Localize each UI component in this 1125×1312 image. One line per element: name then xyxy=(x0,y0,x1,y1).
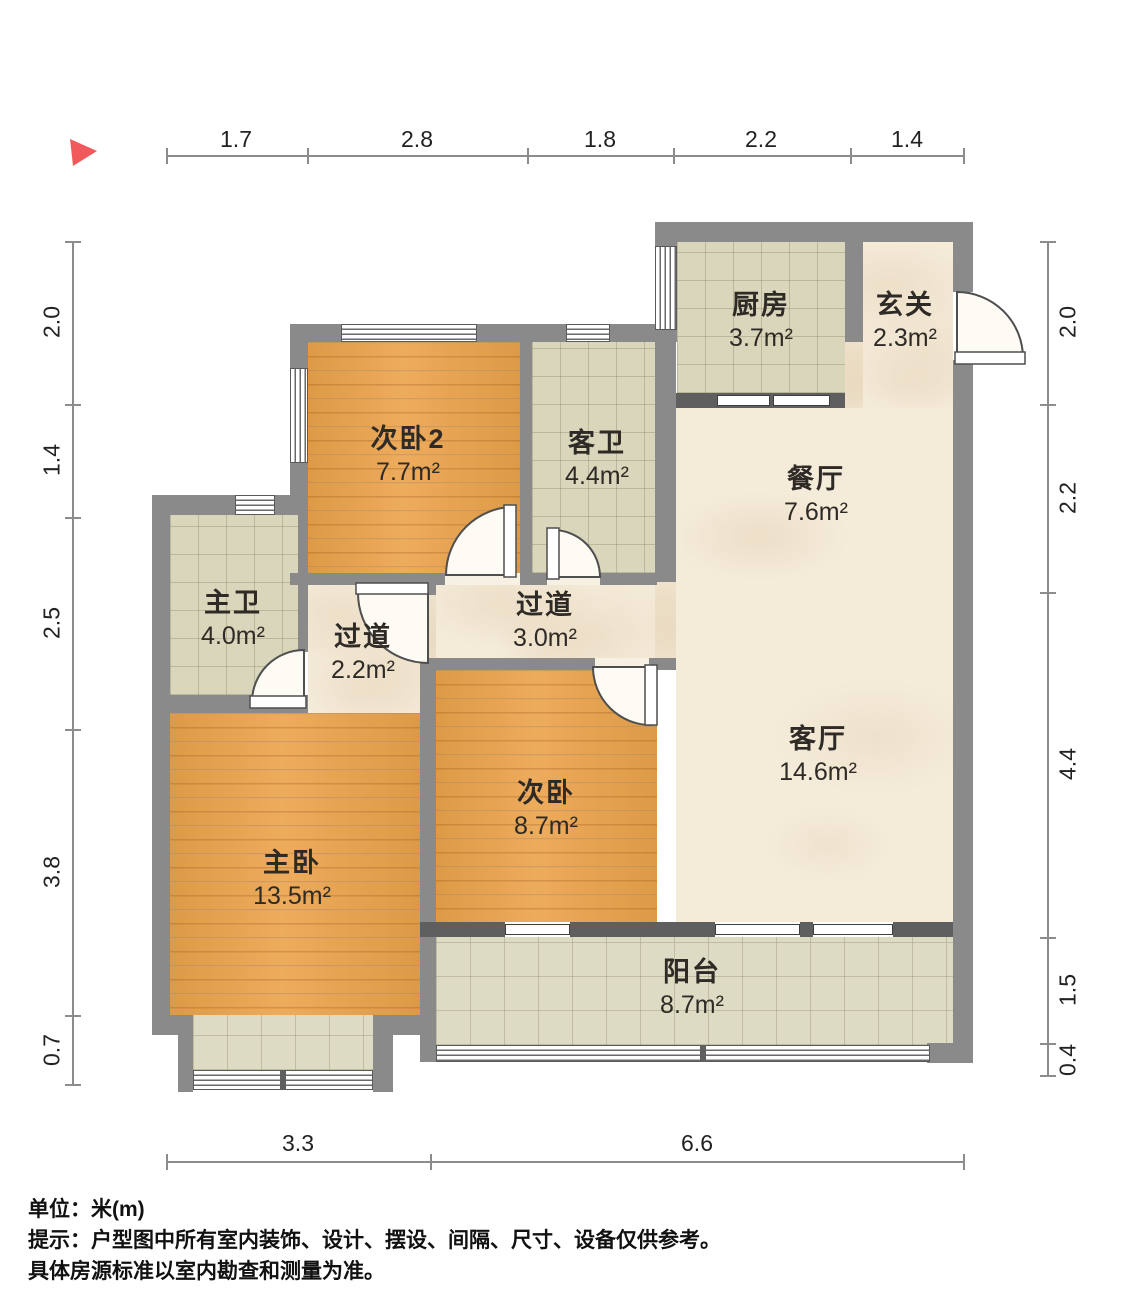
dim-top-tick xyxy=(963,148,965,164)
dim-left-label: 1.4 xyxy=(39,444,66,476)
dim-right-tick xyxy=(1040,937,1056,939)
dim-right-tick xyxy=(1040,592,1056,594)
masterbath-door-leaf xyxy=(250,696,306,708)
room-label-hallway30: 过道3.0m² xyxy=(513,588,577,654)
bedroom3-door-arc xyxy=(593,667,651,725)
dim-right-tick xyxy=(1040,241,1056,243)
dim-bottom-line xyxy=(166,1161,965,1163)
dim-top-label: 1.7 xyxy=(220,126,252,153)
room-label-masterbath: 主卫4.0m² xyxy=(201,586,265,652)
dim-top-line xyxy=(166,155,965,157)
bedroom3-door-leaf xyxy=(645,665,657,725)
room-label-guestbath: 客卫4.4m² xyxy=(565,426,629,492)
dim-right-tick xyxy=(1040,404,1056,406)
dim-left-tick xyxy=(65,241,81,243)
bedroom2-door-leaf xyxy=(504,505,516,577)
dim-right-line xyxy=(1047,241,1049,1077)
dim-right-label: 4.4 xyxy=(1055,748,1082,780)
dim-bottom-tick xyxy=(166,1154,168,1170)
masterbath-door-arc xyxy=(252,650,304,702)
guestbath-door-leaf xyxy=(547,528,559,579)
dim-bottom-tick xyxy=(963,1154,965,1170)
room-label-dining: 餐厅7.6m² xyxy=(784,462,848,528)
dim-bottom-tick xyxy=(430,1154,432,1170)
dim-left-label: 2.0 xyxy=(39,306,66,338)
dim-top-label: 2.2 xyxy=(745,126,777,153)
dim-bottom-label: 3.3 xyxy=(282,1130,314,1157)
dim-left-label: 0.7 xyxy=(39,1034,66,1066)
dim-left-tick xyxy=(65,517,81,519)
dim-left-label: 2.5 xyxy=(39,607,66,639)
dim-top-label: 1.8 xyxy=(584,126,616,153)
dim-left-label: 3.8 xyxy=(39,856,66,888)
dim-left-tick xyxy=(65,404,81,406)
dim-top-tick xyxy=(673,148,675,164)
room-label-kitchen: 厨房3.7m² xyxy=(729,288,793,354)
dim-left-tick xyxy=(65,729,81,731)
footer-unit-line: 单位：米(m) xyxy=(28,1193,145,1223)
dim-top-label: 1.4 xyxy=(891,126,923,153)
dim-top-tick xyxy=(527,148,529,164)
room-label-entry: 玄关2.3m² xyxy=(873,288,937,354)
dim-top-tick xyxy=(307,148,309,164)
dim-left-line xyxy=(72,241,74,1086)
door-swings-layer xyxy=(0,0,1125,1312)
dim-bottom-label: 6.6 xyxy=(681,1130,713,1157)
dim-top-label: 2.8 xyxy=(401,126,433,153)
dim-right-label: 2.2 xyxy=(1055,482,1082,514)
dim-right-label: 1.5 xyxy=(1055,974,1082,1006)
entry-door-leaf xyxy=(955,352,1025,364)
masterbedroom-door-leaf xyxy=(356,583,428,594)
floor-plan-canvas: 厨房3.7m² 玄关2.3m² 餐厅7.6m² 次卧27.7m² 客卫4.4m²… xyxy=(0,0,1125,1312)
dim-top-tick xyxy=(166,148,168,164)
dim-left-tick xyxy=(65,1015,81,1017)
footer-tip-line2: 具体房源标准以室内勘查和测量为准。 xyxy=(28,1255,385,1285)
entry-door-arc xyxy=(957,292,1023,358)
room-label-balcony: 阳台8.7m² xyxy=(660,955,724,1021)
room-label-masterbed: 主卧13.5m² xyxy=(253,846,331,912)
footer-tip-line1: 提示：户型图中所有室内装饰、设计、摆设、间隔、尺寸、设备仅供参考。 xyxy=(28,1224,721,1254)
dim-left-tick xyxy=(65,1084,81,1086)
guestbath-door-arc xyxy=(553,530,600,577)
room-label-bedroom3: 次卧8.7m² xyxy=(514,776,578,842)
dim-right-label: 2.0 xyxy=(1055,306,1082,338)
dim-right-label: 0.4 xyxy=(1055,1044,1082,1076)
dim-top-tick xyxy=(850,148,852,164)
room-label-living: 客厅14.6m² xyxy=(779,722,857,788)
room-label-bedroom2: 次卧27.7m² xyxy=(370,422,445,488)
room-label-hallway22: 过道2.2m² xyxy=(331,620,395,686)
